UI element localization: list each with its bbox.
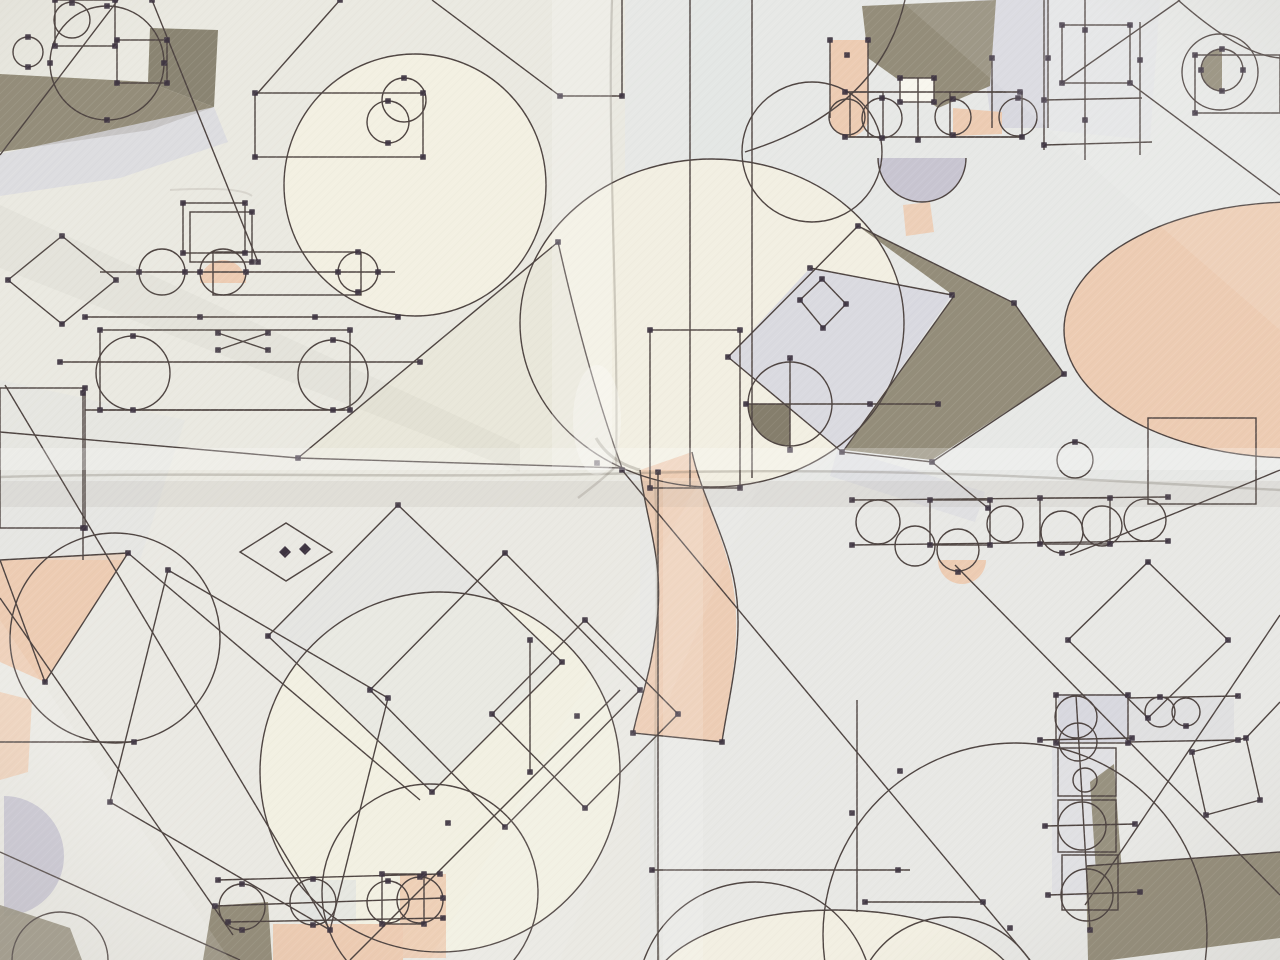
scarf-photograph — [0, 0, 1280, 960]
photo-vignette-overlay — [0, 0, 1280, 960]
scarf-pattern-canvas — [0, 0, 1280, 960]
